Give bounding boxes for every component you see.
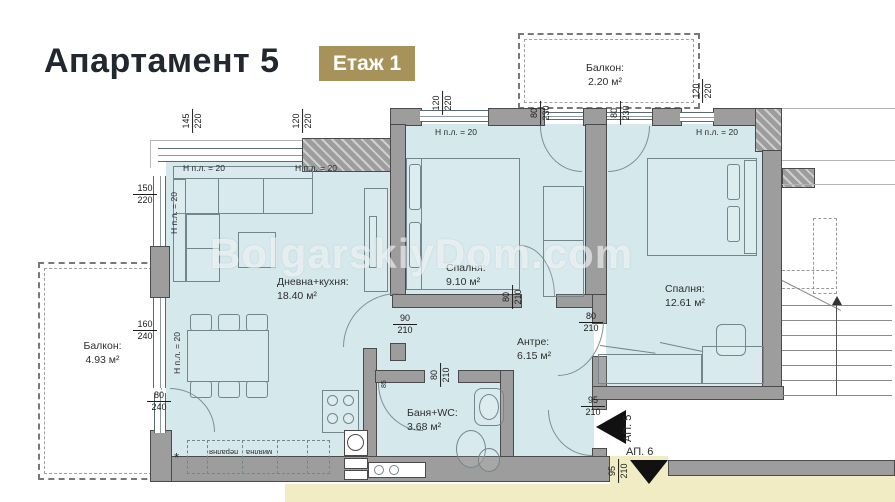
dim-entrance: 95210 — [608, 456, 630, 486]
window-dining-left — [153, 298, 166, 388]
ap5-label: АП. 5 — [622, 398, 634, 442]
chair — [190, 381, 212, 398]
coffee-table — [238, 232, 276, 268]
wall — [668, 460, 895, 476]
burner — [343, 395, 354, 406]
bed1-headboard-line — [421, 158, 422, 290]
floor-plan: Апартамент 5 Етаж 1 — [0, 0, 895, 502]
label-bedroom1: Спалня:9.10 м² — [446, 262, 486, 289]
washer-drum — [389, 465, 399, 475]
washer-drum — [374, 465, 384, 475]
dim-window: 150220 — [130, 184, 160, 206]
label-bath: Баня+WC:3.68 м² — [407, 407, 458, 434]
balcony-left-railing — [44, 268, 162, 474]
wall — [755, 108, 782, 152]
wall — [390, 124, 406, 296]
dim-door: 80210 — [430, 360, 452, 390]
kitchen-counter — [187, 440, 330, 474]
page-title: Апартамент 5 — [44, 42, 279, 81]
bath-sink-bowl — [479, 394, 499, 420]
neighbor-strip-right — [660, 474, 895, 502]
stairs-treads — [782, 305, 892, 397]
label-living: Дневна+кухня:18.40 м² — [277, 276, 349, 303]
pillow — [409, 222, 421, 268]
wall — [762, 150, 782, 400]
dim-window: 120220 — [432, 88, 454, 118]
window-living-top — [158, 148, 302, 162]
sink-bowl — [347, 434, 364, 451]
dim-door: 80230 — [530, 98, 552, 128]
appliance-box — [344, 470, 368, 480]
label-hall: Антре:6.15 м² — [517, 336, 551, 363]
asterisk-mark: * — [174, 450, 179, 465]
ap6-entrance-arrow-icon — [630, 460, 668, 484]
wall-bedroom-divider — [585, 124, 607, 298]
pillow — [409, 164, 421, 210]
wall — [150, 430, 172, 482]
dim-window: 160240 — [130, 320, 160, 342]
dim-window: 120220 — [292, 106, 314, 136]
kitchen-appliance-label: миялна — [246, 448, 272, 457]
counter-divider — [242, 440, 243, 474]
stairs-dashed-flight — [813, 218, 837, 294]
neighbor-strip-bottom — [285, 484, 615, 502]
dim-window: 145220 — [182, 106, 204, 136]
bed2 — [647, 158, 757, 256]
window-bedroom1 — [420, 110, 488, 122]
door-width-note: 85 — [381, 374, 388, 388]
balcony-left — [38, 262, 168, 480]
stool — [716, 324, 746, 356]
ap6-label: АП. 6 — [626, 446, 653, 458]
floor-badge: Етаж 1 — [319, 46, 415, 81]
sofa-line — [263, 178, 264, 214]
height-label: Н п.л. = 20 — [696, 127, 738, 137]
height-label: Н п.л. = 20 — [435, 127, 477, 137]
dim-door: 80230 — [610, 98, 632, 128]
tv-screen — [369, 216, 377, 268]
dim-window: 120220 — [692, 76, 714, 106]
bed2-headboard — [744, 160, 757, 254]
counter-divider — [277, 440, 278, 474]
pillow — [727, 206, 740, 242]
dining-table — [187, 330, 269, 382]
chair — [218, 381, 240, 398]
toilet-tank — [478, 448, 500, 472]
dim-door: 80210 — [502, 282, 524, 312]
wall — [652, 108, 682, 126]
wall — [713, 108, 757, 126]
dim-door: 80240 — [144, 391, 174, 413]
wall — [782, 168, 815, 188]
burner — [343, 413, 354, 424]
pillow — [727, 164, 740, 200]
burner — [327, 395, 338, 406]
label-bedroom2: Спалня:12.61 м² — [665, 283, 705, 310]
counter-divider — [307, 440, 308, 474]
height-label: Н п.л. = 20 — [169, 176, 179, 234]
stairs-up-arrow-icon — [832, 296, 842, 305]
kitchen-appliance-label: пералня — [209, 448, 238, 457]
window-bedroom2 — [680, 112, 714, 122]
counter-divider — [207, 440, 208, 474]
sofa-line — [186, 248, 220, 249]
burner — [327, 413, 338, 424]
label-balcony-top: Балкон:2.20 м² — [555, 62, 655, 89]
height-label: Н п.л. = 20 — [172, 316, 182, 374]
chair — [246, 381, 268, 398]
sofa-line — [218, 178, 219, 214]
chair — [190, 314, 212, 331]
dim-door: 80210 — [576, 312, 606, 334]
wall — [150, 246, 170, 298]
dim-door: 90210 — [390, 314, 420, 336]
facade-line — [150, 140, 302, 141]
wall — [592, 386, 784, 400]
stairs-dashed-line — [782, 288, 834, 289]
stairs-dashed-line — [782, 270, 834, 271]
sofa-seat — [173, 178, 313, 214]
facade-line — [150, 140, 151, 168]
chair — [218, 314, 240, 331]
wardrobe-line — [543, 240, 584, 241]
bench — [598, 354, 702, 384]
appliance-box — [344, 458, 368, 469]
stairs-line — [782, 184, 895, 185]
height-label: Н п.л. = 20 — [295, 163, 337, 173]
stairs-line — [782, 160, 895, 161]
stairs-walkline — [836, 300, 837, 396]
wardrobe — [543, 186, 584, 297]
stairs-line — [782, 108, 895, 109]
height-label: Н п.л. = 20 — [183, 163, 225, 173]
chair — [246, 314, 268, 331]
label-balcony-left: Балкон:4.93 м² — [55, 340, 150, 367]
